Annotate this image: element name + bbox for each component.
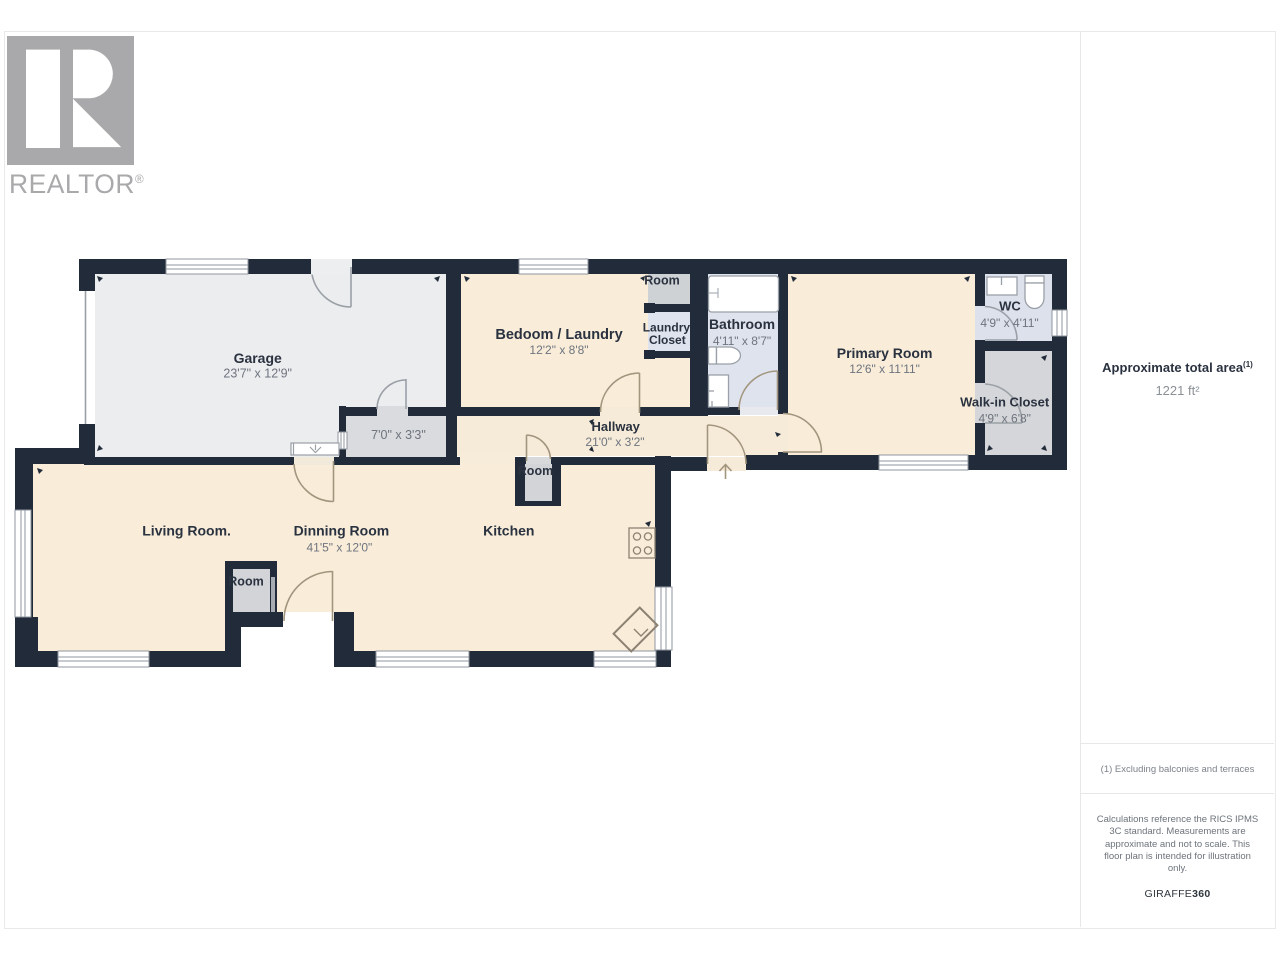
svg-text:Living Room.: Living Room. [142,523,231,539]
svg-text:21'0" x 3'2": 21'0" x 3'2" [585,435,644,449]
svg-text:4'11" x 8'7": 4'11" x 8'7" [713,334,771,348]
svg-text:Walk-in Closet: Walk-in Closet [960,395,1050,410]
svg-text:Closet: Closet [649,333,686,347]
svg-text:Room: Room [228,575,263,589]
svg-text:Hallway: Hallway [591,419,640,434]
svg-text:4'9" x 6'8": 4'9" x 6'8" [978,412,1030,426]
svg-text:Garage: Garage [234,350,282,366]
svg-text:41'5" x 12'0": 41'5" x 12'0" [306,541,372,555]
svg-text:Bathroom: Bathroom [709,316,775,332]
svg-text:Primary Room: Primary Room [837,345,933,361]
svg-text:12'2" x 8'8": 12'2" x 8'8" [529,343,588,357]
svg-text:Kitchen: Kitchen [483,523,534,539]
svg-text:Bedoom / Laundry: Bedoom / Laundry [495,327,622,343]
svg-text:Room: Room [644,274,679,288]
svg-text:23'7" x 12'9": 23'7" x 12'9" [223,367,292,381]
svg-text:12'6" x 11'11": 12'6" x 11'11" [849,362,920,376]
svg-text:4'9" x 4'11": 4'9" x 4'11" [980,316,1038,330]
svg-text:WC: WC [999,299,1021,314]
svg-text:Room: Room [518,464,553,478]
svg-text:Dinning Room: Dinning Room [294,523,390,539]
svg-text:7'0" x 3'3": 7'0" x 3'3" [371,428,426,442]
